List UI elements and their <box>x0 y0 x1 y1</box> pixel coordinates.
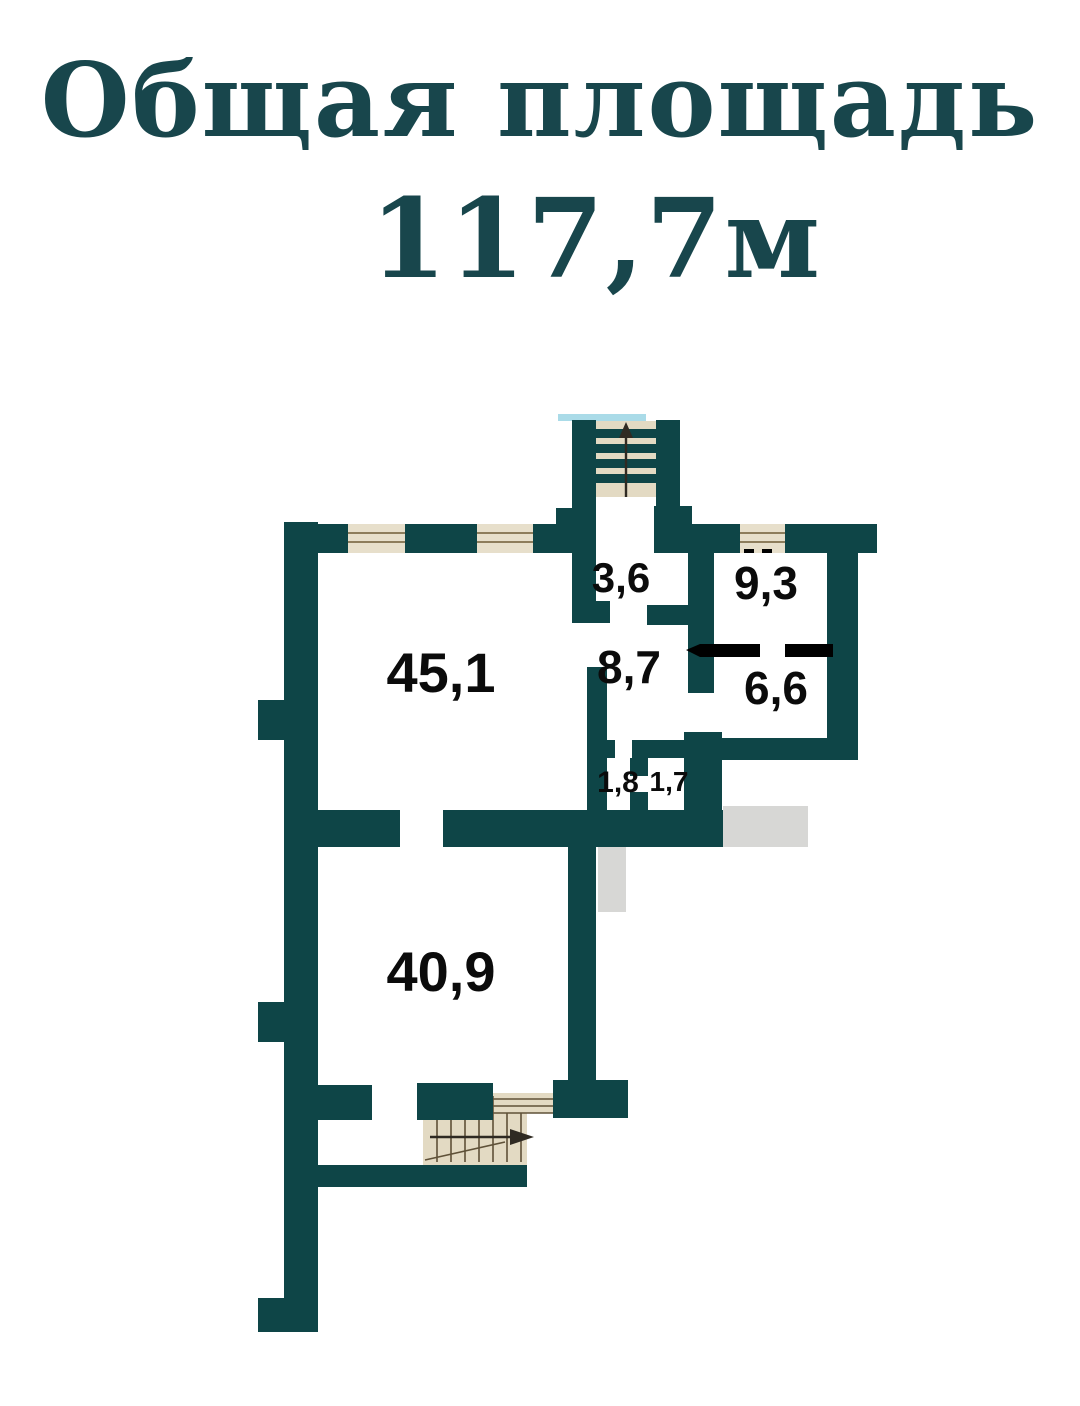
window-icon <box>477 524 533 553</box>
wall-stair-block-left <box>417 1083 493 1120</box>
window-sill-mark <box>762 549 772 553</box>
floorplan-drawing: 45,1 3,6 9,3 8,7 6,6 1,8 1,7 40,9 <box>0 0 1080 1406</box>
wall-3-6-bottom <box>647 605 688 625</box>
room-area-label-45-1: 45,1 <box>387 641 496 704</box>
wall-top-segment <box>692 524 740 553</box>
window-icon <box>348 524 405 553</box>
partition-bar-right <box>785 644 833 657</box>
wall-top-segment <box>318 524 348 553</box>
wall-40-9-right <box>568 847 596 1082</box>
wall-shaft-junction-right <box>654 506 692 553</box>
room-area-label-1-8: 1,8 <box>597 766 639 799</box>
wall-pilaster-lower <box>258 1002 284 1042</box>
window-sill-mark <box>744 549 754 553</box>
stair-cut-marker <box>558 414 646 421</box>
floorplan-page: Общая площадь 117,7м <box>0 0 1080 1406</box>
wall-shaft-left-foot <box>588 601 610 623</box>
shading-balcony <box>723 806 808 847</box>
room-area-label-1-7: 1,7 <box>650 766 689 797</box>
wall-top-segment <box>785 524 877 553</box>
wall-pilaster-upper <box>258 700 284 740</box>
wall-left-foot <box>258 1298 318 1332</box>
room-area-label-3-6: 3,6 <box>592 554 650 601</box>
wall-top-segment <box>405 524 477 553</box>
wall-small-rooms-top <box>632 740 685 758</box>
room-area-label-40-9: 40,9 <box>387 940 496 1003</box>
wall-45-1-40-9-left <box>284 810 400 847</box>
shading-wall-shadow <box>598 847 626 912</box>
wall-shaft-junction-left <box>556 508 588 553</box>
staircase-top-icon <box>596 421 656 497</box>
partition-bar-left <box>700 644 760 657</box>
wall-6-6-bottom <box>720 738 827 760</box>
wall-door-jamb <box>607 740 615 758</box>
room-area-label-6-6: 6,6 <box>744 662 808 714</box>
wall-45-1-40-9-right <box>443 810 723 847</box>
wall-mid-upper <box>688 553 714 693</box>
partition-9-3-6-6 <box>686 644 833 657</box>
wall-stair-block-right <box>553 1080 628 1118</box>
window-icon <box>740 524 785 553</box>
room-area-label-9-3: 9,3 <box>734 557 798 609</box>
wall-40-9-bottom-left <box>318 1085 372 1120</box>
room-area-label-8-7: 8,7 <box>597 641 661 693</box>
wall-left-outer <box>284 522 318 1332</box>
wall-under-stairs <box>318 1165 527 1187</box>
